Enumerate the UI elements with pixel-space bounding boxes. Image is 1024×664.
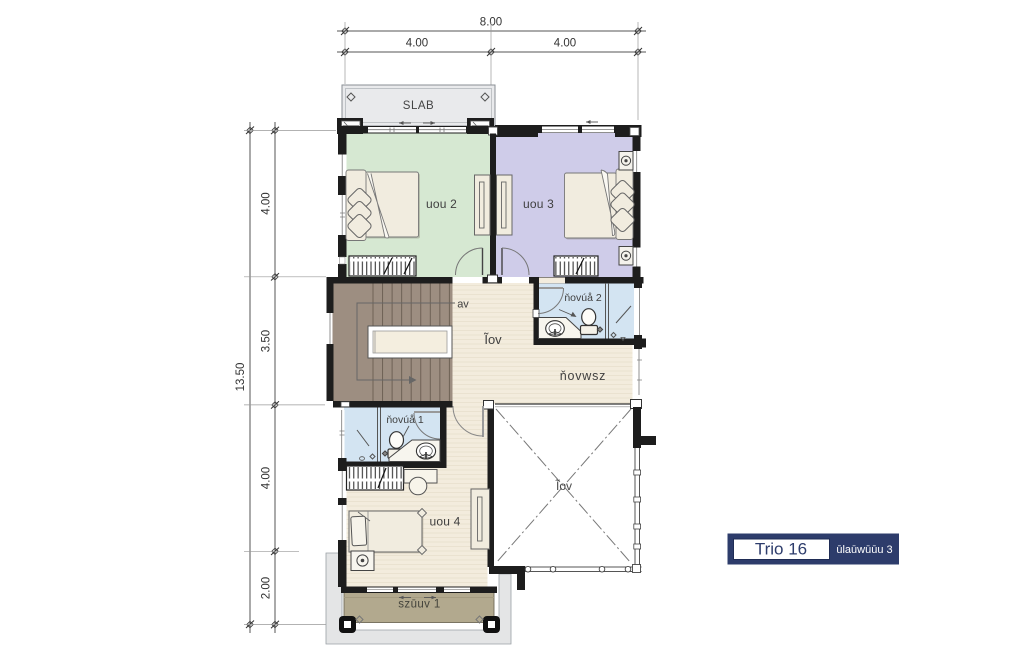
svg-text:ňovwsz: ňovwsz xyxy=(560,369,606,383)
svg-text:4.00: 4.00 xyxy=(261,192,273,214)
svg-text:ūlaūwūūu 3: ūlaūwūūu 3 xyxy=(836,544,892,556)
svg-text:ňovúå 1: ňovúå 1 xyxy=(386,414,424,426)
svg-text:Ĩov: Ĩov xyxy=(483,332,502,347)
svg-text:av: av xyxy=(457,299,469,311)
svg-text:szūuv 1: szūuv 1 xyxy=(398,599,440,611)
svg-text:Ĩov: Ĩov xyxy=(555,479,572,493)
svg-text:4.00: 4.00 xyxy=(261,467,273,489)
svg-text:uou 3: uou 3 xyxy=(523,197,554,211)
svg-text:SLAB: SLAB xyxy=(403,100,434,112)
svg-text:uou 2: uou 2 xyxy=(426,197,457,211)
svg-text:ňovúå 2: ňovúå 2 xyxy=(564,292,602,304)
svg-text:uou 4: uou 4 xyxy=(429,515,460,529)
svg-text:3.50: 3.50 xyxy=(261,330,273,352)
svg-text:2.00: 2.00 xyxy=(261,577,273,599)
svg-text:4.00: 4.00 xyxy=(554,38,576,50)
svg-text:13.50: 13.50 xyxy=(235,363,247,392)
svg-text:Trio 16: Trio 16 xyxy=(755,540,807,559)
svg-text:4.00: 4.00 xyxy=(406,38,428,50)
